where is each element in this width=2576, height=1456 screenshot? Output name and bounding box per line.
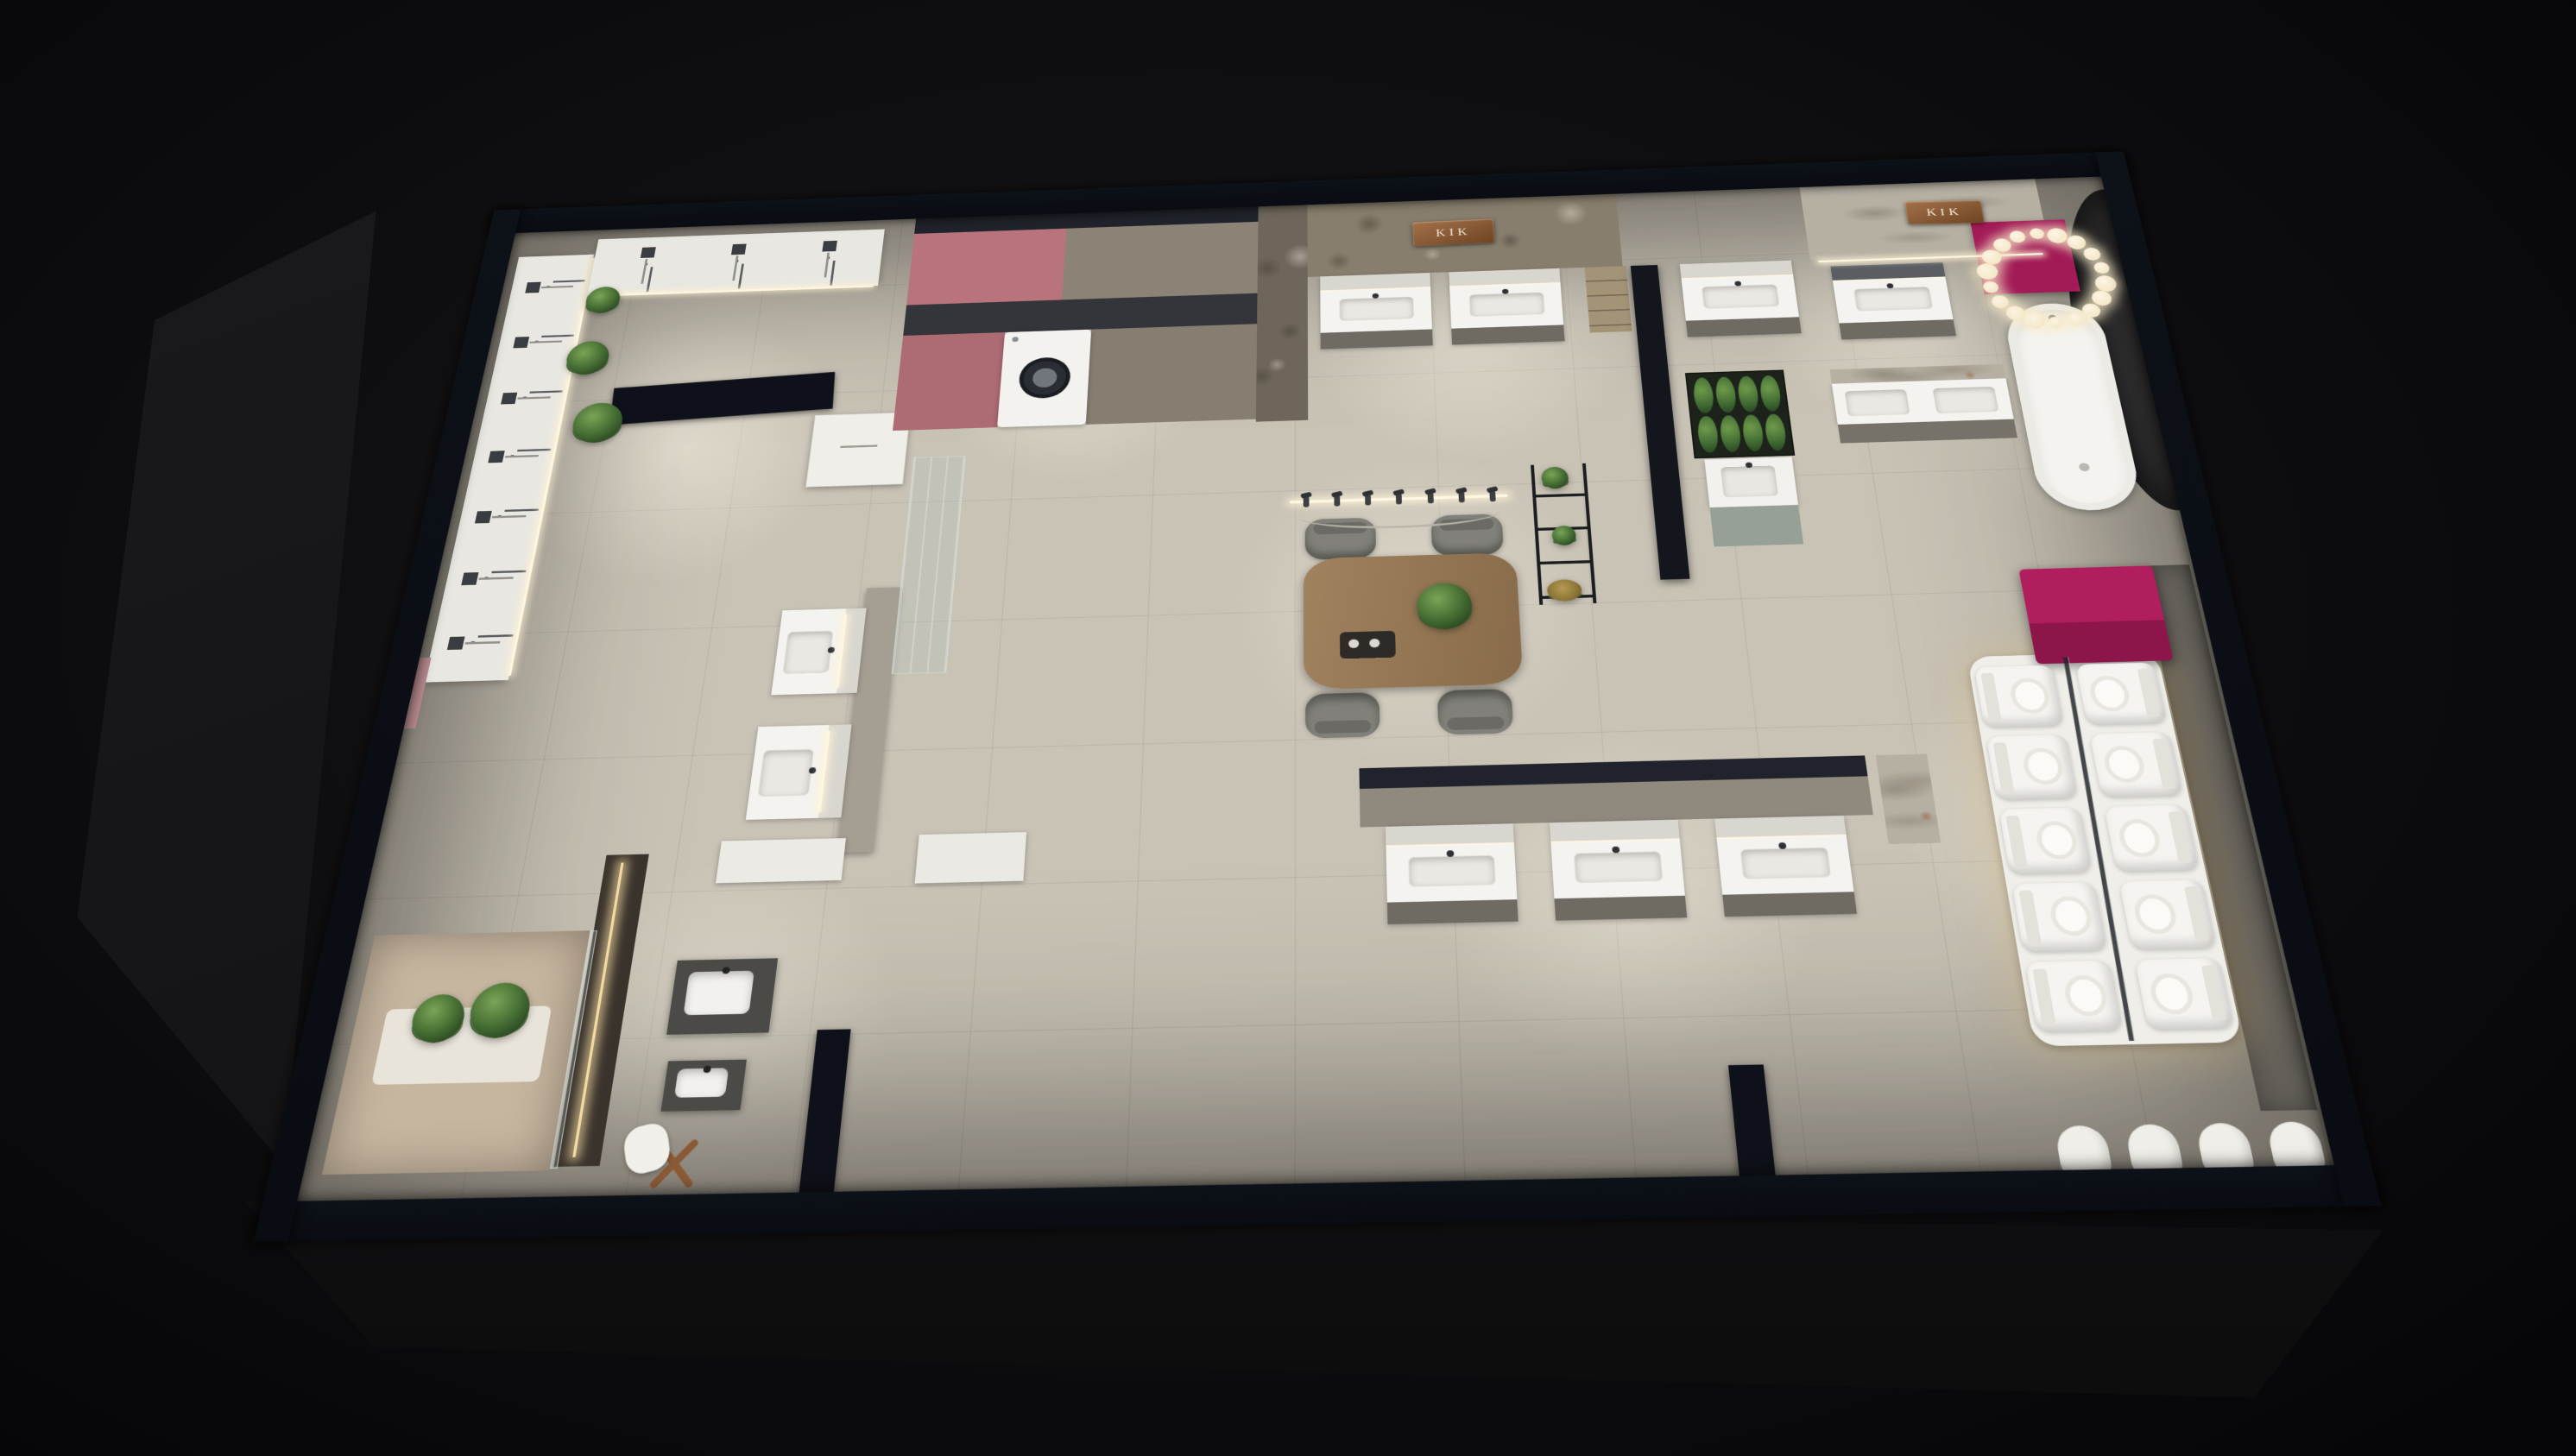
vanity-display (1680, 261, 1802, 337)
chair (1305, 692, 1380, 739)
vanity-display-west (746, 724, 852, 820)
display-plinth (716, 838, 846, 883)
basin-counter (666, 958, 778, 1035)
faucet (1746, 463, 1753, 469)
vanity-display (1830, 262, 1956, 339)
showroom-floorplan: KIK KIK (254, 151, 2381, 1241)
vanity-display (1550, 820, 1687, 921)
chandelier-bulb (1981, 281, 1999, 293)
basin (1933, 387, 1999, 413)
hand-shower (1458, 491, 1464, 502)
chandelier-bulb (1975, 263, 1999, 280)
chandelier-bulb (2029, 228, 2045, 239)
vanity-row-left (1320, 268, 1577, 349)
garden-foliage (1692, 377, 1715, 413)
shower-station (439, 616, 508, 668)
partition-vanity-row (1386, 816, 1866, 924)
hand-shower (1427, 493, 1433, 504)
smart-toilet (2089, 732, 2182, 797)
magenta-reception-cabinet (2018, 565, 2173, 664)
smart-toilet (2135, 958, 2235, 1030)
double-basin-vanity (1829, 364, 2017, 444)
chandelier-bulb (2046, 228, 2069, 243)
laundry-base-cabinet-taupe (1086, 324, 1257, 425)
shower-station (707, 241, 767, 284)
brand-plaque-right: KIK (1904, 200, 1985, 224)
laundry-upper-cabinet-pink (906, 229, 1066, 306)
vanity-row-right (1680, 261, 1802, 337)
shower-station (481, 432, 546, 480)
smart-toilet (2119, 879, 2217, 949)
hand-shower (1489, 490, 1495, 501)
shower-station (799, 237, 857, 280)
laundry-upper-cabinet-taupe (1062, 222, 1258, 300)
chandelier-bulb (1980, 249, 2003, 265)
brand-plaque-left: KIK (1412, 218, 1495, 246)
shower-station (468, 492, 534, 541)
shower-stations-top (595, 230, 877, 296)
laundry-base-cabinet-pink (893, 332, 1005, 431)
chandelier-bulb (2024, 312, 2048, 329)
vanity-display (1320, 273, 1433, 350)
tea-tray (1340, 631, 1396, 659)
shower-station (494, 375, 558, 421)
vertical-garden (1685, 369, 1795, 458)
hand-shower (1365, 495, 1371, 506)
display-plinth (915, 832, 1027, 883)
open-shelf-unit (1585, 266, 1632, 332)
hand-shower (1304, 496, 1310, 507)
chandelier-bulb (2048, 317, 2065, 329)
smart-toilet (1998, 807, 2092, 873)
led-strip (818, 731, 830, 812)
bubble-chandelier (1965, 222, 2131, 335)
vanity-display (1449, 268, 1564, 345)
garden-foliage (1764, 413, 1788, 451)
basin-counter (661, 1060, 747, 1112)
smart-toilet (2012, 882, 2108, 951)
shower-station (507, 319, 570, 364)
chandelier-bulb (2093, 274, 2118, 291)
consultation-table (1304, 552, 1524, 690)
garden-foliage (1696, 416, 1720, 453)
sage-vanity (1704, 457, 1803, 546)
basin (1845, 389, 1910, 416)
garden-foliage (1736, 376, 1759, 413)
brand-plaque-right-label: KIK (1926, 206, 1964, 219)
chandelier-bulb (2066, 236, 2087, 250)
stone-column (1256, 205, 1308, 421)
vanity-base (1710, 505, 1804, 546)
shower-display-wall-top (587, 229, 885, 295)
garden-foliage (1741, 414, 1765, 451)
shower-station (616, 244, 676, 287)
led-strip (837, 615, 848, 688)
basin (1720, 466, 1778, 498)
etched-text-line (840, 444, 877, 448)
washing-machine (997, 330, 1091, 428)
garden-foliage (1719, 415, 1742, 452)
garden-foliage (1714, 376, 1738, 413)
hand-shower (1396, 494, 1402, 505)
vanity-display-west (771, 608, 866, 696)
garden-foliage (1758, 375, 1782, 412)
chandelier-bulb (2005, 306, 2027, 320)
chandelier-bulb (2081, 303, 2102, 318)
smart-toilet (2104, 804, 2200, 871)
render-stage: KIK KIK (0, 0, 2576, 1456)
brand-plaque-left-label: KIK (1436, 226, 1472, 240)
smart-toilet (2075, 663, 2167, 725)
vanity-display (1386, 823, 1518, 924)
smart-toilet (2025, 960, 2123, 1031)
hand-shower (1335, 495, 1341, 507)
smart-toilet (1986, 735, 2078, 800)
vanity-display (1714, 816, 1857, 917)
smart-toilet (1974, 665, 2064, 728)
chandelier-bulb (2066, 312, 2085, 325)
chandelier-bulb (2093, 262, 2112, 274)
chandelier-bulb (1991, 294, 2011, 308)
chandelier-bulb (2082, 247, 2102, 260)
shower-station (454, 553, 521, 603)
chandelier-bulb (2009, 230, 2027, 243)
chair (1437, 689, 1514, 735)
shower-station (519, 266, 581, 309)
